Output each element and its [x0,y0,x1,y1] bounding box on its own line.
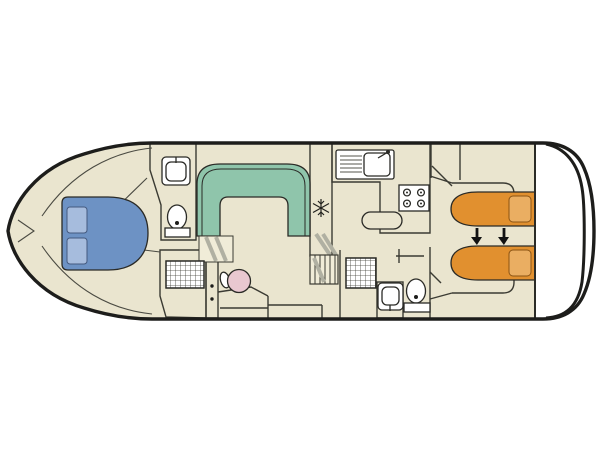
boat-deck-plan-svg [0,0,600,450]
bow-double-bed [62,197,148,270]
aft-single-bed-top [451,192,535,226]
galley-stove-4-burner [399,185,429,211]
helm-door-hinge-dot [210,284,213,287]
helm-steering-wheel [228,270,251,293]
bow-shower [166,261,204,288]
aft-bed-pillow [509,196,531,222]
galley-counter-peninsula [362,212,402,229]
forward-companionway-steps [199,236,233,262]
bow-bed-pillow [67,238,87,264]
midship-shower [346,258,376,288]
aft-washbasin [378,283,403,311]
stern-inner-curve [546,144,584,318]
boat-floorplan-canvas [0,0,600,450]
bow-bed-pillow [67,207,87,233]
aft-bed-pillow [509,250,531,276]
helm-door-hinge-dot [210,297,213,300]
galley-sink-with-drainer [336,150,394,179]
aft-single-bed-bottom [451,246,535,280]
bow-washbasin [162,157,190,185]
